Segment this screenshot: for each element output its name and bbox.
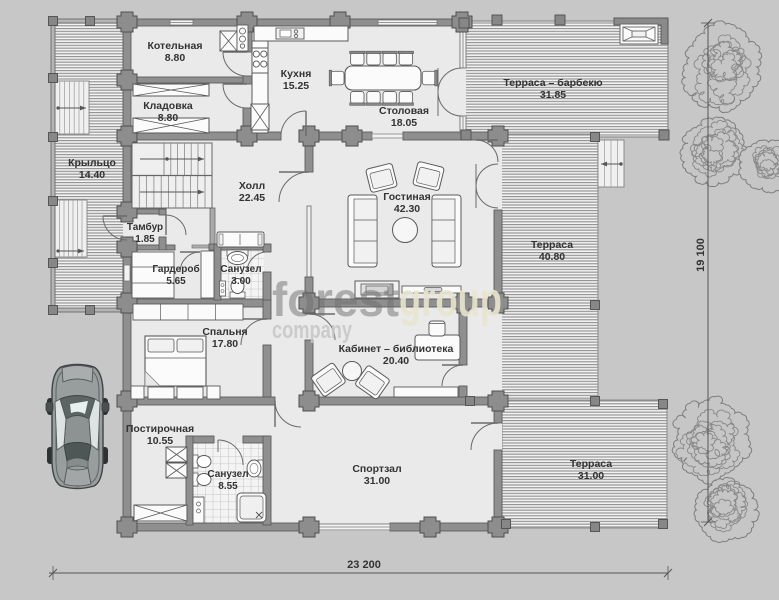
svg-text:Холл: Холл xyxy=(239,180,265,192)
svg-text:20.40: 20.40 xyxy=(383,355,409,367)
svg-text:Спортзал: Спортзал xyxy=(352,463,401,475)
svg-text:8.80: 8.80 xyxy=(158,112,179,124)
svg-text:Столовая: Столовая xyxy=(379,105,429,117)
svg-text:8.80: 8.80 xyxy=(165,52,186,64)
svg-text:5.65: 5.65 xyxy=(166,276,186,287)
svg-text:17.80: 17.80 xyxy=(212,338,238,350)
svg-text:42.30: 42.30 xyxy=(394,203,420,215)
svg-text:22.45: 22.45 xyxy=(239,192,265,204)
svg-text:Тамбур: Тамбур xyxy=(127,221,163,233)
svg-text:Гостиная: Гостиная xyxy=(383,191,430,203)
svg-text:Кладовка: Кладовка xyxy=(143,100,193,112)
svg-text:Терраса – барбекю: Терраса – барбекю xyxy=(503,77,602,89)
svg-text:Котельная: Котельная xyxy=(148,40,203,52)
svg-text:1.85: 1.85 xyxy=(135,234,155,245)
svg-text:31.85: 31.85 xyxy=(540,89,566,101)
svg-text:Санузел: Санузел xyxy=(207,469,248,480)
svg-text:31.00: 31.00 xyxy=(578,470,604,482)
svg-text:14.40: 14.40 xyxy=(79,169,105,181)
svg-text:Кабинет – библиотека: Кабинет – библиотека xyxy=(339,343,454,355)
svg-text:23 200: 23 200 xyxy=(347,559,381,571)
svg-text:10.55: 10.55 xyxy=(147,435,173,447)
svg-text:Терраса: Терраса xyxy=(570,458,612,470)
svg-text:Крыльцо: Крыльцо xyxy=(68,157,116,169)
svg-text:Постирочная: Постирочная xyxy=(126,423,194,435)
svg-text:Санузел: Санузел xyxy=(220,264,261,275)
svg-text:19 100: 19 100 xyxy=(695,238,707,272)
svg-text:Гардероб: Гардероб xyxy=(152,263,199,275)
svg-text:15.25: 15.25 xyxy=(283,80,309,92)
svg-text:40.80: 40.80 xyxy=(539,251,565,263)
svg-text:31.00: 31.00 xyxy=(364,475,390,487)
svg-text:Терраса: Терраса xyxy=(531,239,573,251)
svg-text:Спальня: Спальня xyxy=(202,326,247,338)
svg-text:18.05: 18.05 xyxy=(391,117,417,129)
svg-text:Кухня: Кухня xyxy=(281,68,312,80)
svg-text:8.55: 8.55 xyxy=(218,481,238,492)
svg-text:group: group xyxy=(399,274,502,327)
svg-text:3.00: 3.00 xyxy=(231,276,251,287)
svg-text:company: company xyxy=(272,317,352,344)
